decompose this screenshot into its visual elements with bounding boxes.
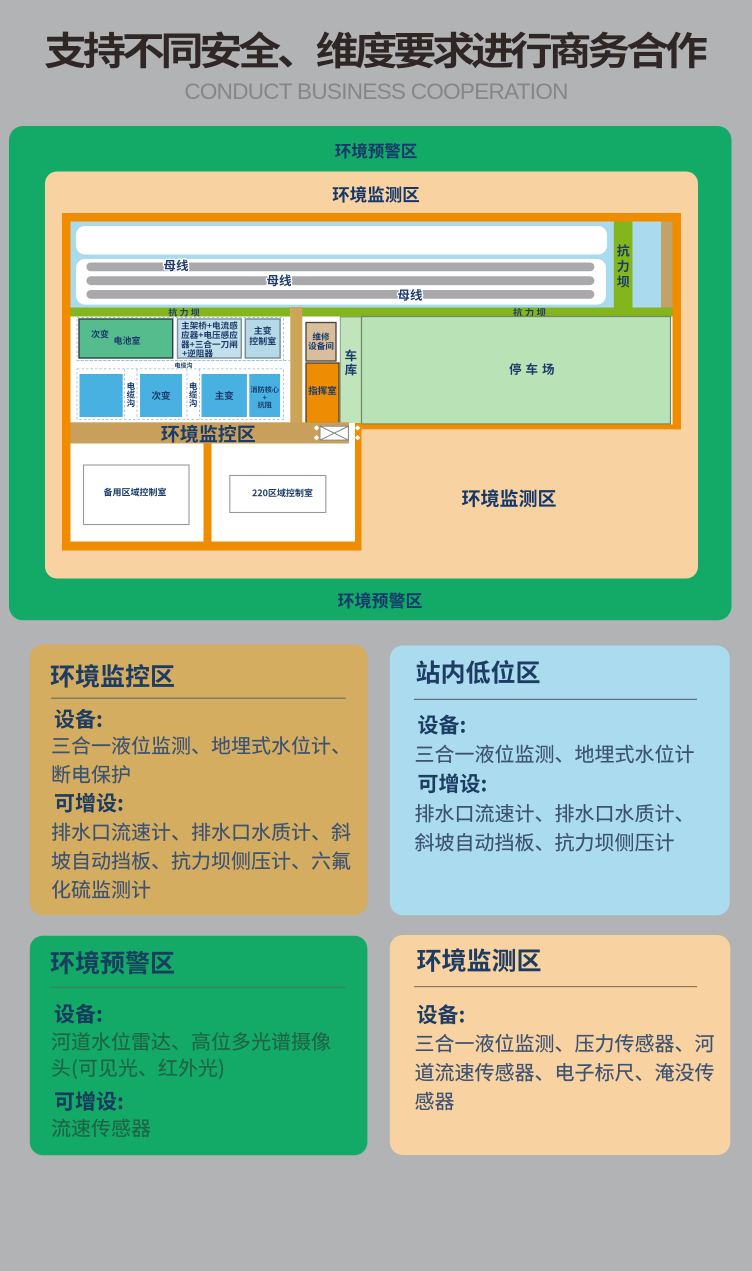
svg-text:CONDUCT BUSINESS COOPERATION: CONDUCT BUSINESS COOPERATION: [184, 79, 567, 104]
